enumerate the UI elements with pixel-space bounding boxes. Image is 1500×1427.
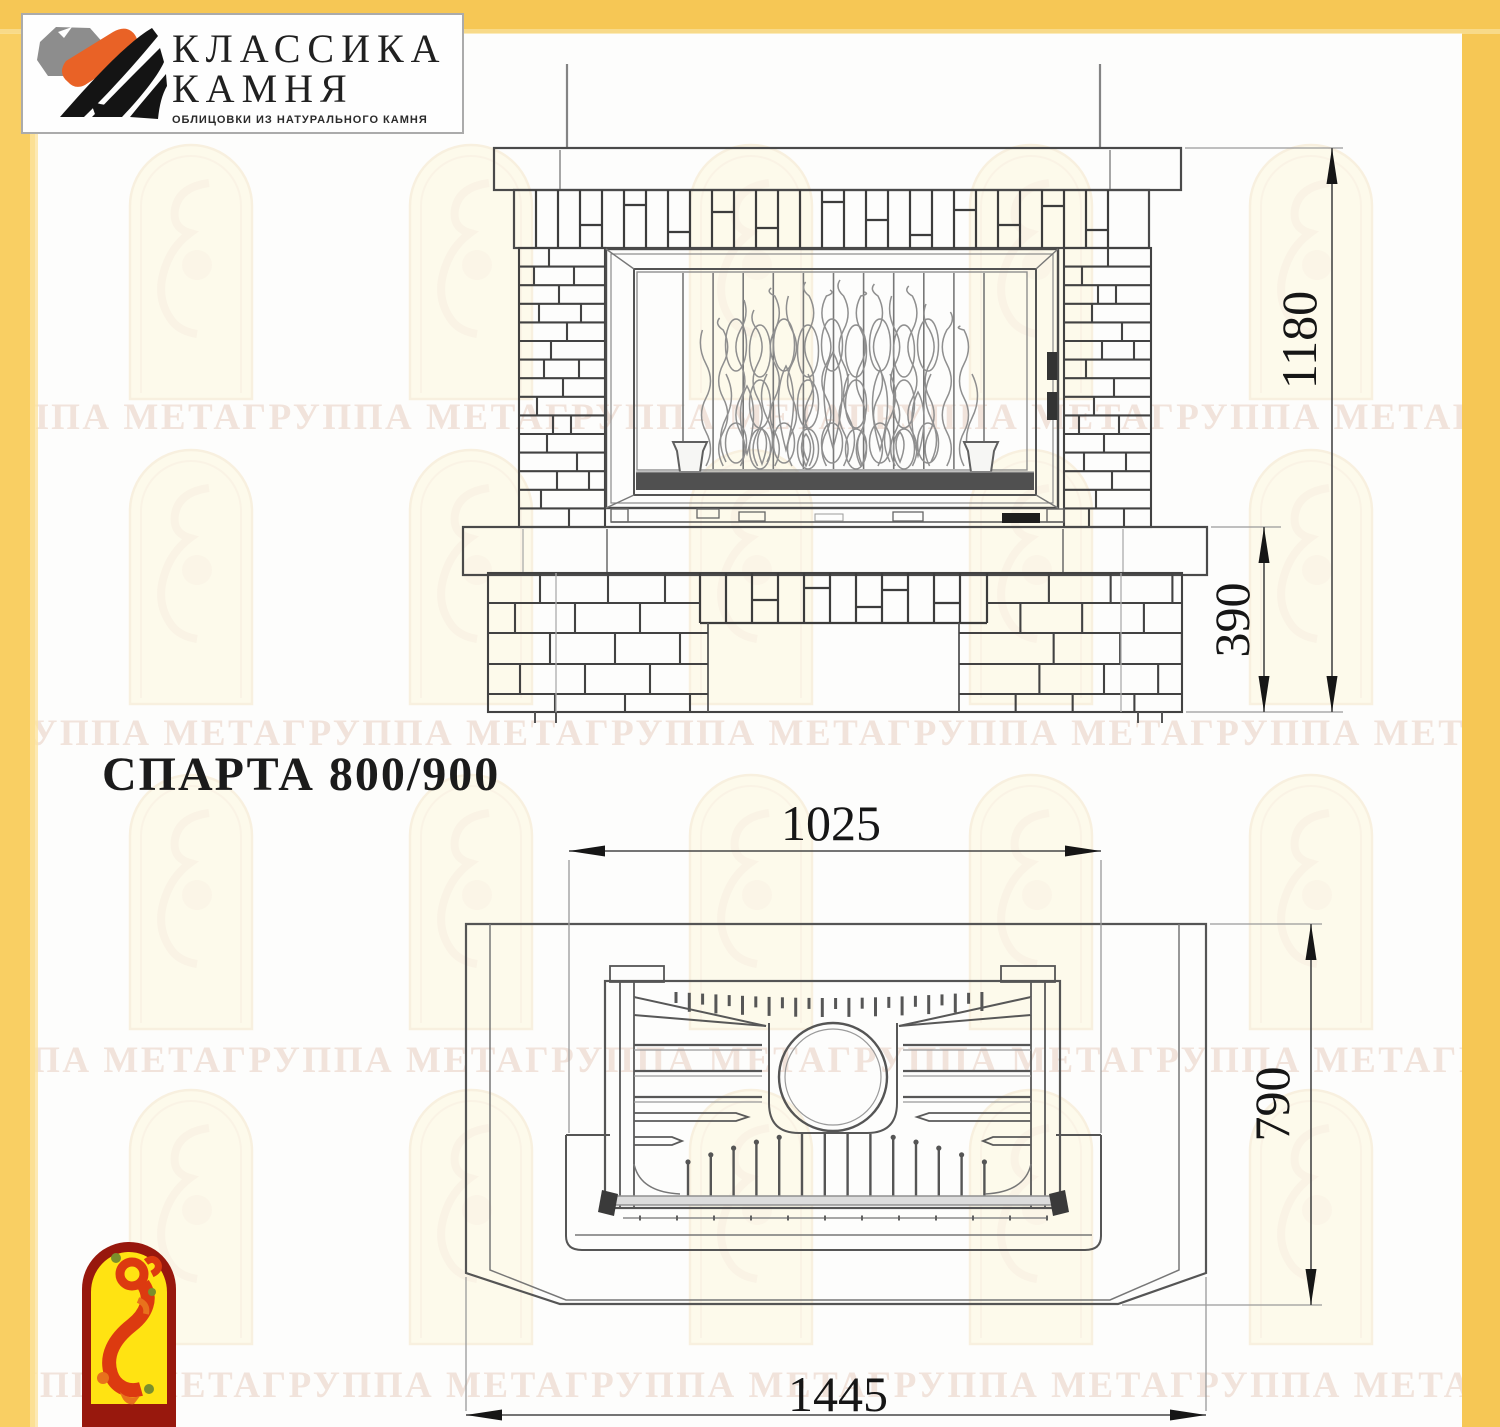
svg-text:1180: 1180	[1271, 291, 1327, 389]
svg-text:1445: 1445	[788, 1366, 888, 1422]
svg-text:1025: 1025	[781, 795, 881, 851]
svg-text:390: 390	[1204, 583, 1260, 658]
svg-text:КАМНЯ: КАМНЯ	[172, 66, 354, 111]
svg-text:ГРУППА МЕТАГРУППА МЕТАГРУППА М: ГРУППА МЕТАГРУППА МЕТАГРУППА МЕТАГРУППА …	[0, 1365, 1500, 1406]
svg-text:ОБЛИЦОВКИ ИЗ НАТУРАЛЬНОГО КАМН: ОБЛИЦОВКИ ИЗ НАТУРАЛЬНОГО КАМНЯ	[172, 114, 428, 126]
svg-text:КЛАССИКА: КЛАССИКА	[172, 26, 447, 71]
svg-text:СПАРТА 800/900: СПАРТА 800/900	[102, 748, 500, 801]
svg-text:790: 790	[1244, 1067, 1300, 1142]
